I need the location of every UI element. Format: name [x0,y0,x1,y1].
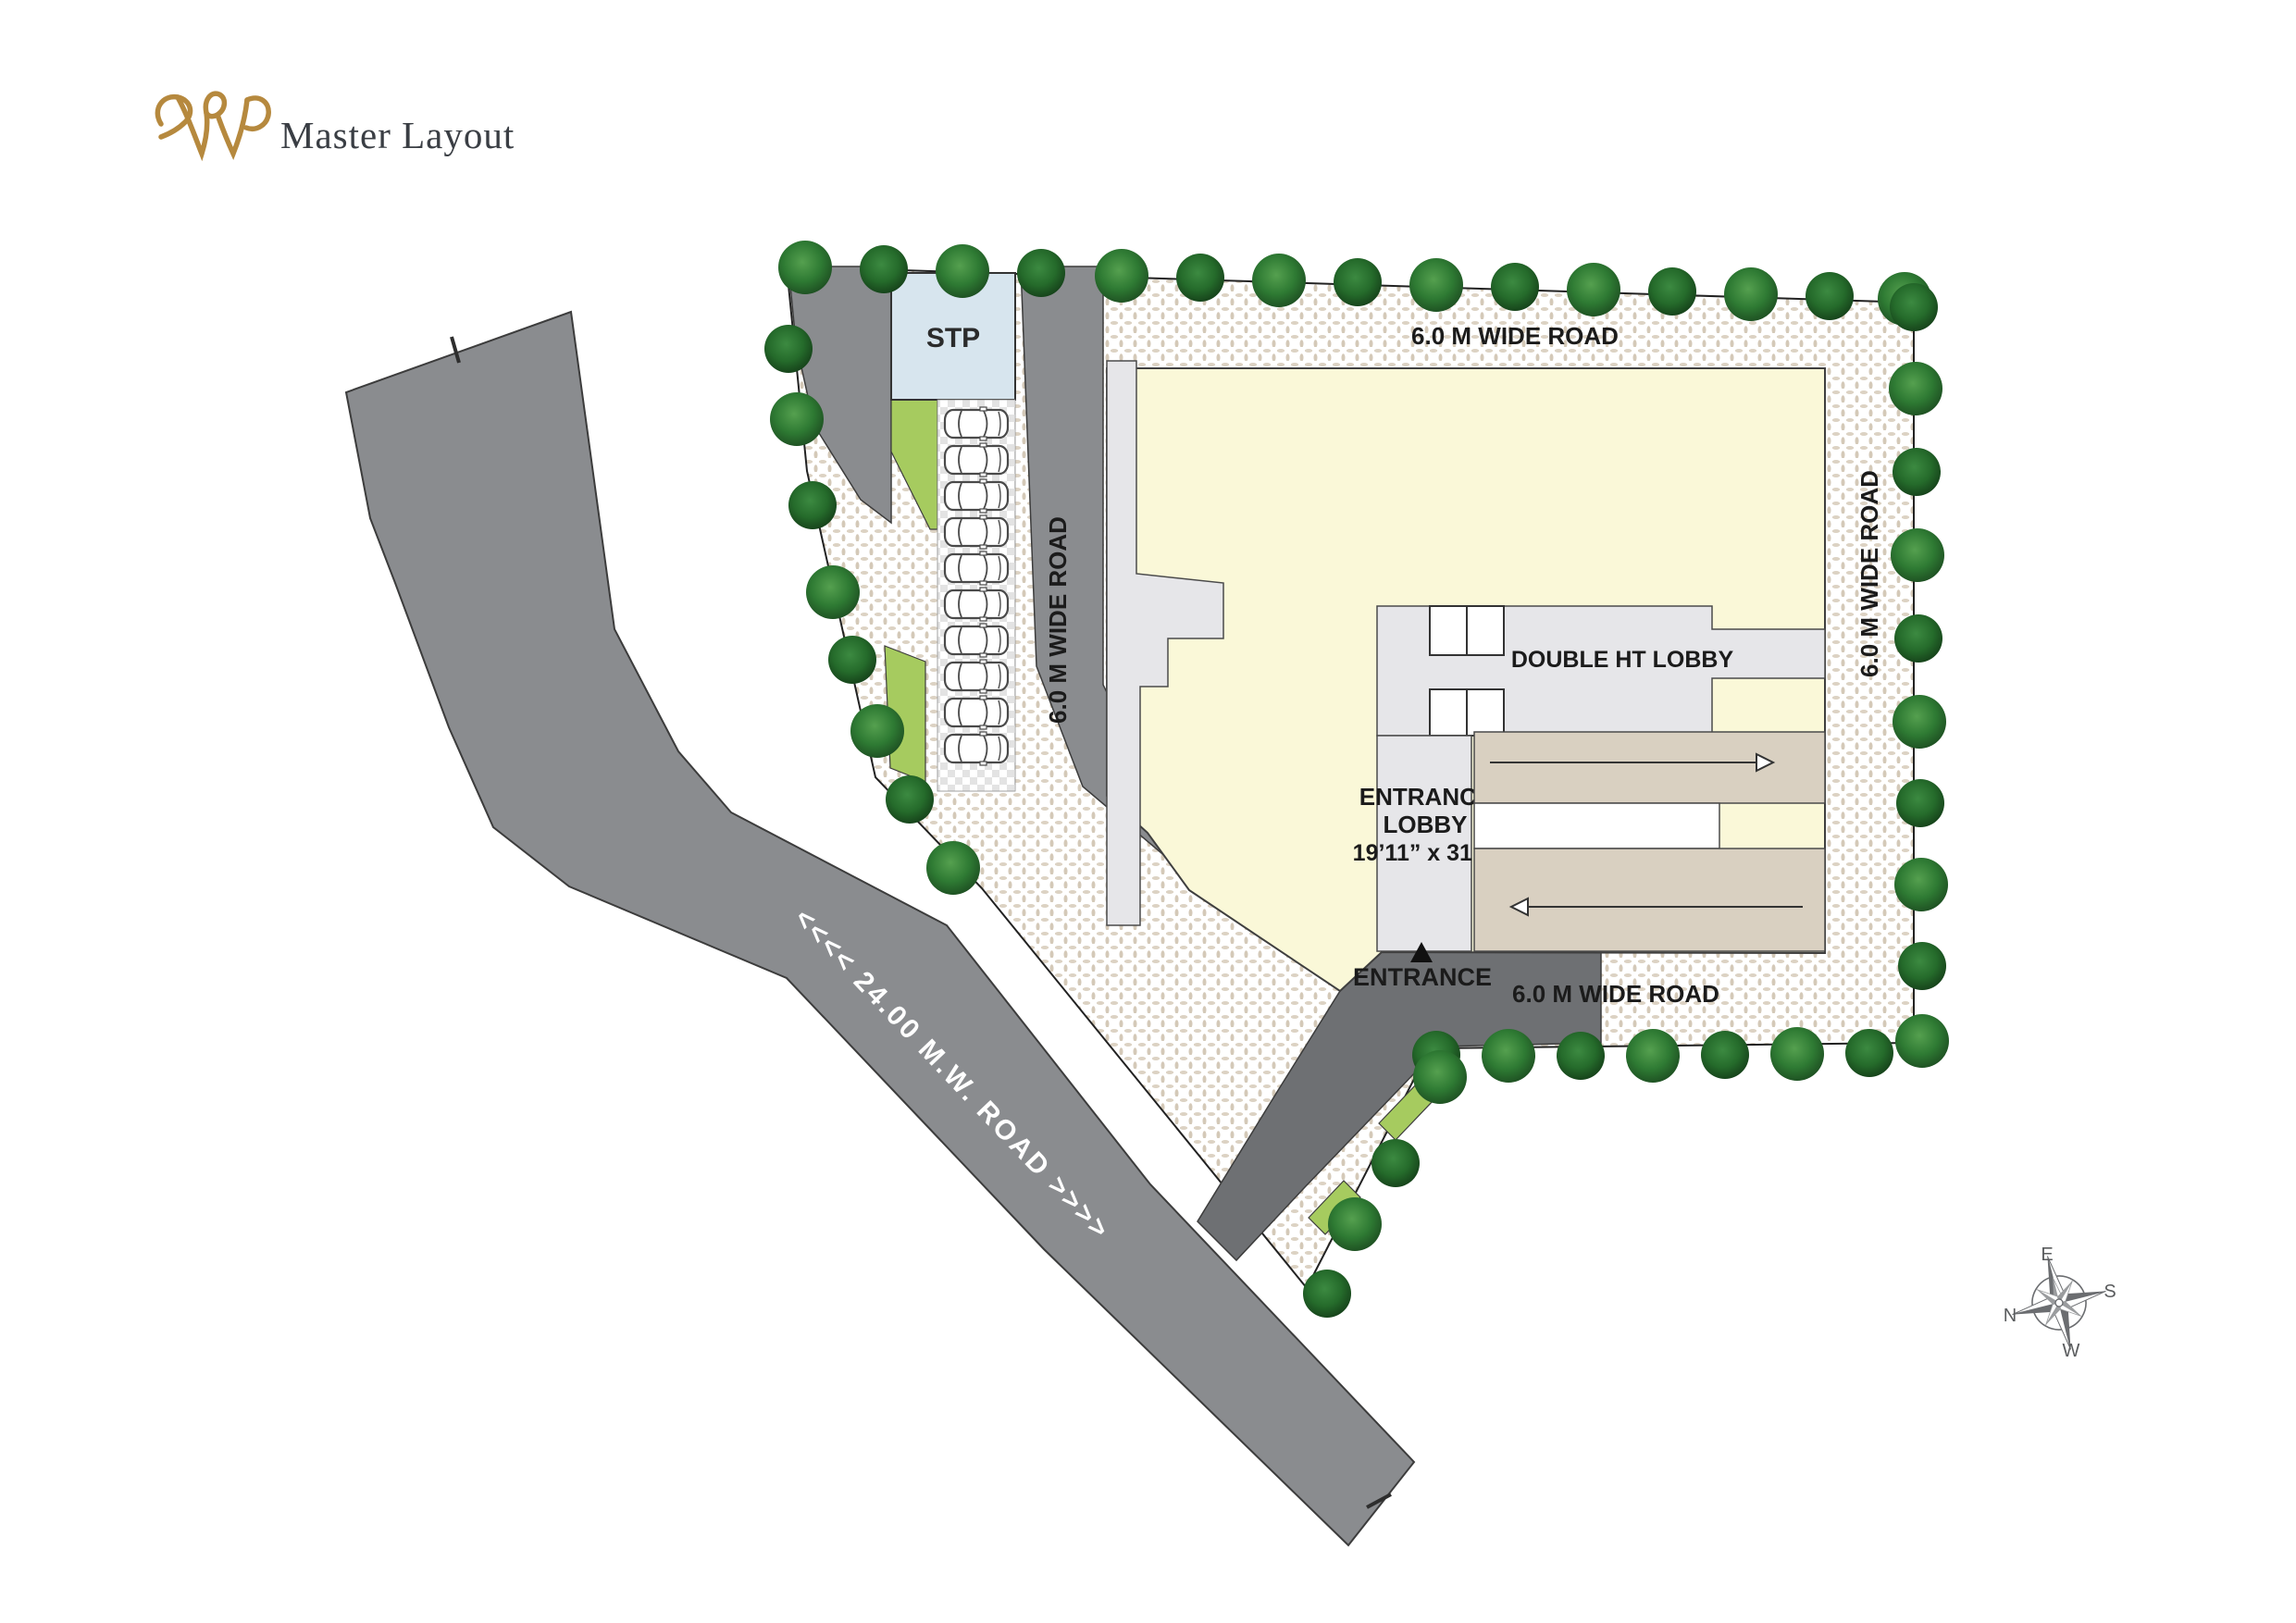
brand-logo-icon [157,93,268,154]
tree-icon [1328,1197,1382,1251]
entrance-label: ENTRANCE [1353,963,1492,991]
site-plan: <<<< 24.00 M.W. ROAD >>>> STP DOUBLE HT … [0,0,2296,1623]
tree-icon [1890,283,1938,331]
car-icon [945,443,1008,477]
car-icon [945,660,1008,693]
tree-icon [1176,254,1224,302]
tree-icon [1701,1031,1749,1079]
tree-icon [770,392,824,446]
road-label-bottom: 6.0 M WIDE ROAD [1512,980,1719,1008]
tree-icon [1334,258,1382,306]
tree-icon [788,481,837,529]
entrance-lobby-line2: LOBBY [1384,811,1468,838]
compass-n-label: N [2004,1306,2017,1326]
tree-icon [860,245,908,293]
master-layout-page: <<<< 24.00 M.W. ROAD >>>> STP DOUBLE HT … [0,0,2296,1623]
ramp-upper [1474,732,1825,803]
tree-icon [1095,249,1148,303]
tree-icon [1893,695,1946,749]
tree-icon [1898,942,1946,990]
tree-icon [806,565,860,619]
page-title: Master Layout [280,114,515,156]
double-ht-lobby-label: DOUBLE HT LOBBY [1511,647,1734,673]
car-icon [945,479,1008,513]
tree-icon [1491,263,1539,311]
road-label-top: 6.0 M WIDE ROAD [1411,322,1619,350]
tree-icon [1557,1032,1605,1080]
car-icon [945,551,1008,585]
tree-icon [828,636,876,684]
car-icon [945,696,1008,729]
tree-icon [1770,1027,1824,1081]
stp-label: STP [926,323,980,353]
tree-icon [1845,1029,1893,1077]
car-icon [945,588,1008,621]
road-label-left: 6.0 M WIDE ROAD [1044,516,1072,724]
tree-icon [778,241,832,294]
tree-icon [1017,249,1065,297]
road-label-right: 6.0 M WIDE ROAD [1855,470,1883,677]
compass-e-label: E [2041,1245,2053,1265]
car-icon [945,624,1008,657]
tree-icon [764,325,813,373]
tree-icon [1482,1029,1535,1083]
tree-icon [1894,614,1942,663]
tree-icon [926,841,980,895]
tree-icon [1567,263,1620,316]
compass-w-label: W [2063,1341,2080,1361]
tree-icon [936,244,989,298]
ramp-middle-white [1474,803,1719,849]
tree-icon [1252,254,1306,307]
tree-icon [886,775,934,824]
tree-icon [1894,858,1948,911]
tree-icon [1409,258,1463,312]
tree-icon [850,704,904,758]
compass-icon: E S N W [2001,1245,2117,1361]
tree-icon [1371,1139,1420,1187]
tree-icon [1626,1029,1680,1083]
tree-icon [1895,1014,1949,1068]
tree-icon [1724,267,1778,321]
tree-icon [1889,362,1942,415]
tree-icon [1893,448,1941,496]
compass-s-label: S [2104,1282,2116,1302]
tree-icon [1896,779,1944,827]
car-icon [945,407,1008,440]
tree-icon [1806,272,1854,320]
tree-icon [1648,267,1696,316]
tree-icon [1891,528,1944,582]
car-icon [945,515,1008,549]
tree-icon [1303,1270,1351,1318]
tree-icon [1413,1050,1467,1104]
entrance-lobby-line1: ENTRANCE [1359,783,1493,811]
car-icon [945,732,1008,765]
